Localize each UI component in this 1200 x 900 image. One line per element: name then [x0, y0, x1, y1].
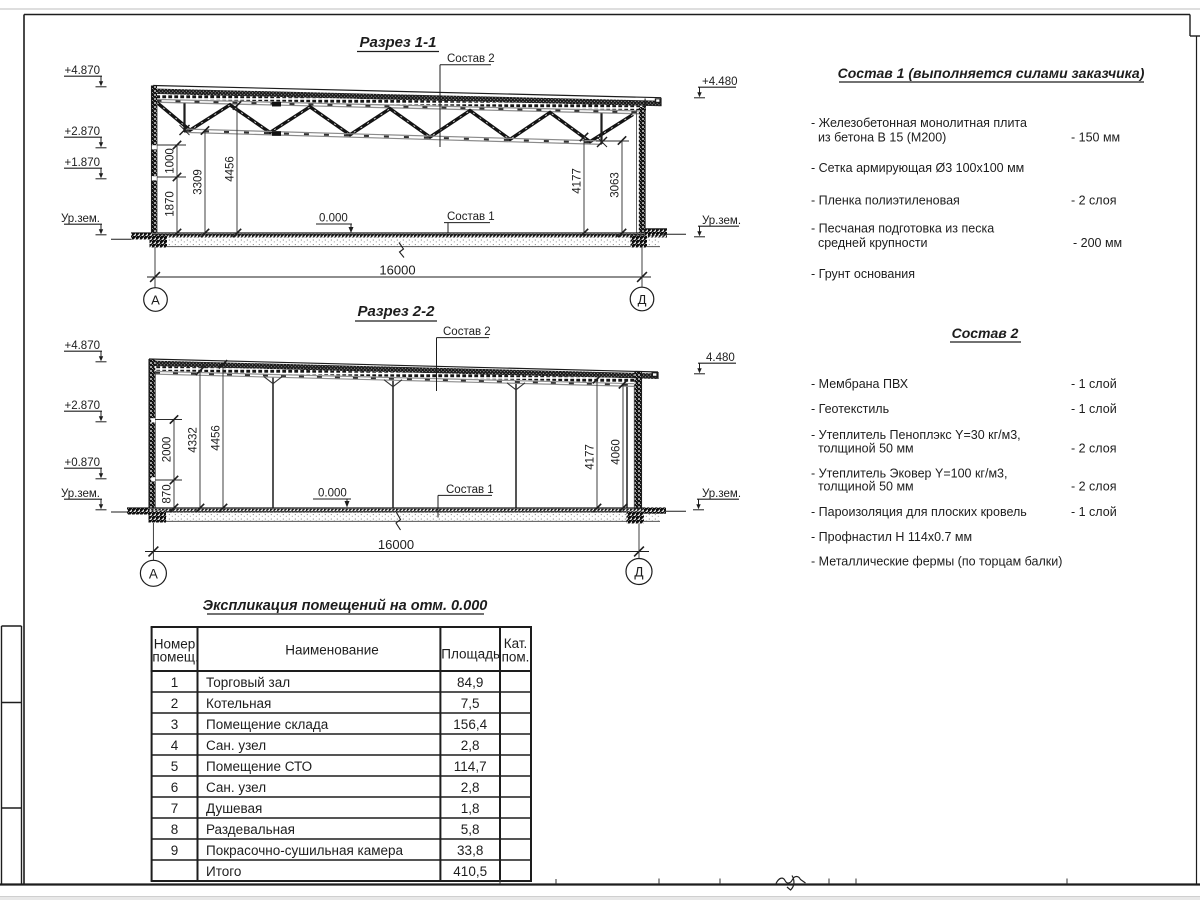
- svg-text:4177: 4177: [572, 168, 584, 194]
- svg-text:- Железобетонная монолитная п: - Железобетонная монолитная плита: [811, 116, 1027, 130]
- svg-text:5: 5: [171, 759, 179, 774]
- svg-text:Итого: Итого: [206, 864, 241, 879]
- svg-text:- Сетка армирующая Ø3 100х100: - Сетка армирующая Ø3 100х100 мм: [811, 161, 1024, 175]
- svg-text:33,8: 33,8: [457, 843, 483, 858]
- svg-text:2,8: 2,8: [461, 738, 480, 753]
- svg-text:84,9: 84,9: [457, 675, 483, 690]
- svg-text:Покрасочно-сушильная камера: Покрасочно-сушильная камера: [206, 843, 404, 858]
- svg-text:870: 870: [162, 484, 174, 503]
- svg-text:2: 2: [171, 696, 179, 711]
- svg-text:Торговый зал: Торговый зал: [206, 675, 290, 690]
- svg-text:средней крупности: средней крупности: [811, 236, 928, 250]
- svg-text:помещ.: помещ.: [152, 650, 198, 665]
- svg-text:0.000: 0.000: [318, 488, 347, 500]
- svg-text:Наименование: Наименование: [285, 643, 379, 658]
- svg-text:16000: 16000: [379, 263, 415, 278]
- svg-text:- 1 слой: - 1 слой: [1071, 402, 1117, 416]
- svg-text:4456: 4456: [225, 156, 237, 182]
- svg-text:4: 4: [171, 738, 179, 753]
- svg-text:2000: 2000: [162, 437, 174, 463]
- svg-text:8: 8: [171, 822, 179, 837]
- svg-text:Состав 1: Состав 1: [446, 484, 494, 496]
- svg-text:+4.870: +4.870: [65, 65, 101, 77]
- svg-text:114,7: 114,7: [454, 759, 487, 774]
- svg-text:+0.870: +0.870: [65, 457, 101, 469]
- svg-text:4332: 4332: [188, 427, 200, 453]
- svg-text:А: А: [151, 292, 160, 307]
- svg-text:Площадь: Площадь: [441, 647, 500, 662]
- svg-text:Ур.зем.: Ур.зем.: [61, 488, 100, 500]
- svg-text:4177: 4177: [585, 444, 597, 470]
- svg-text:4456: 4456: [211, 425, 223, 451]
- svg-text:- 2 слоя: - 2 слоя: [1071, 480, 1116, 494]
- svg-text:Ур.зем.: Ур.зем.: [61, 213, 100, 225]
- svg-text:3: 3: [171, 717, 179, 732]
- svg-text:толщиной 50 мм: толщиной 50 мм: [811, 480, 914, 494]
- svg-text:+4.480: +4.480: [702, 76, 738, 88]
- svg-text:Д: Д: [638, 292, 647, 307]
- svg-text:- 2 слоя: - 2 слоя: [1071, 194, 1116, 208]
- svg-text:3309: 3309: [193, 169, 205, 195]
- svg-text:- Геотекстиль: - Геотекстиль: [811, 402, 889, 416]
- svg-text:0.000: 0.000: [319, 213, 348, 225]
- svg-text:+2.870: +2.870: [65, 126, 101, 138]
- svg-text:- 200 мм: - 200 мм: [1073, 236, 1122, 250]
- svg-text:1: 1: [171, 675, 179, 690]
- svg-text:1000: 1000: [165, 148, 177, 174]
- svg-text:Д: Д: [634, 565, 643, 580]
- svg-text:4060: 4060: [611, 439, 623, 465]
- svg-text:5,8: 5,8: [461, 822, 480, 837]
- svg-text:Раздевальная: Раздевальная: [206, 822, 295, 837]
- svg-text:Сан. узел: Сан. узел: [206, 738, 266, 753]
- svg-text:- 2 слоя: - 2 слоя: [1071, 442, 1116, 456]
- svg-text:410,5: 410,5: [453, 864, 487, 879]
- svg-text:Помещение СТО: Помещение СТО: [206, 759, 312, 774]
- svg-text:Котельная: Котельная: [206, 696, 271, 711]
- svg-text:2,8: 2,8: [461, 780, 480, 795]
- svg-text:156,4: 156,4: [453, 717, 487, 732]
- svg-text:9: 9: [171, 843, 179, 858]
- svg-text:А: А: [149, 566, 158, 581]
- svg-text:из бетона В 15 (М200): из бетона В 15 (М200): [811, 131, 946, 145]
- svg-text:- Грунт основания: - Грунт основания: [811, 267, 915, 281]
- svg-text:4.480: 4.480: [706, 352, 735, 364]
- svg-text:Сан. узел: Сан. узел: [206, 780, 266, 795]
- svg-text:- 1 слой: - 1 слой: [1071, 377, 1117, 391]
- svg-text:- Профнастил Н 114х0.7 мм: - Профнастил Н 114х0.7 мм: [811, 530, 972, 544]
- svg-text:Душевая: Душевая: [206, 801, 262, 816]
- svg-text:1,8: 1,8: [461, 801, 480, 816]
- svg-text:+1.870: +1.870: [65, 157, 101, 169]
- svg-text:- Мембрана ПВХ: - Мембрана ПВХ: [811, 377, 909, 391]
- svg-text:3063: 3063: [610, 172, 622, 198]
- svg-text:1870: 1870: [165, 191, 177, 217]
- svg-text:- Пароизоляция для плоских кро: - Пароизоляция для плоских кровель: [811, 505, 1027, 519]
- svg-text:- 1 слой: - 1 слой: [1071, 505, 1117, 519]
- svg-text:Ур.зем.: Ур.зем.: [702, 488, 741, 500]
- svg-text:Разрез 1-1: Разрез 1-1: [359, 34, 436, 51]
- svg-text:- Утеплитель Пеноплэкс Y=30 кг: - Утеплитель Пеноплэкс Y=30 кг/м3,: [811, 428, 1021, 442]
- svg-text:Состав 2: Состав 2: [447, 53, 495, 65]
- svg-text:- 150 мм: - 150 мм: [1071, 131, 1120, 145]
- svg-text:Экспликация помещений на отм.: Экспликация помещений на отм. 0.000: [203, 598, 488, 614]
- svg-text:+4.870: +4.870: [65, 340, 101, 352]
- svg-text:- Песчаная подготовка из песка: - Песчаная подготовка из песка: [811, 222, 994, 236]
- svg-text:Состав 1 (выполняется силами з: Состав 1 (выполняется силами заказчика): [838, 65, 1145, 81]
- svg-text:16000: 16000: [378, 537, 414, 552]
- svg-text:- Утеплитель Эковер Y=100 кг/м: - Утеплитель Эковер Y=100 кг/м3,: [811, 467, 1007, 481]
- svg-text:Разрез 2-2: Разрез 2-2: [357, 303, 435, 320]
- svg-text:7: 7: [171, 801, 179, 816]
- svg-text:толщиной 50 мм: толщиной 50 мм: [811, 442, 914, 456]
- svg-text:- Пленка полиэтиленовая: - Пленка полиэтиленовая: [811, 194, 960, 208]
- svg-text:Состав 2: Состав 2: [952, 325, 1019, 341]
- svg-text:6: 6: [171, 780, 179, 795]
- svg-text:Состав 1: Состав 1: [447, 211, 495, 223]
- svg-text:+2.870: +2.870: [65, 400, 101, 412]
- svg-text:Ур.зем.: Ур.зем.: [702, 215, 741, 227]
- svg-text:Состав 2: Состав 2: [443, 326, 491, 338]
- svg-text:пом.: пом.: [502, 650, 530, 665]
- svg-text:7,5: 7,5: [461, 696, 480, 711]
- svg-text:- Металлические фермы (по торц: - Металлические фермы (по торцам балки): [811, 555, 1062, 569]
- svg-text:Помещение склада: Помещение склада: [206, 717, 329, 732]
